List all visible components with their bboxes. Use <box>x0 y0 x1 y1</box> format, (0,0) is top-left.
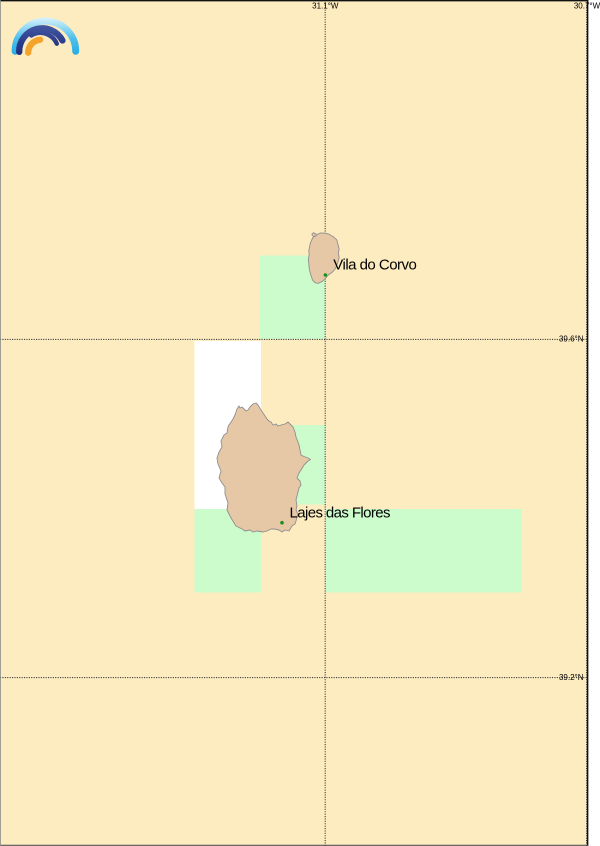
svg-text:Lajes das Flores: Lajes das Flores <box>290 504 391 521</box>
svg-text:39.6°N: 39.6°N <box>559 335 584 344</box>
svg-text:39.2°N: 39.2°N <box>559 673 584 682</box>
svg-text:30.7°W: 30.7°W <box>574 2 600 11</box>
svg-text:31.1°W: 31.1°W <box>312 2 339 11</box>
svg-text:Vila do Corvo: Vila do Corvo <box>333 257 417 274</box>
